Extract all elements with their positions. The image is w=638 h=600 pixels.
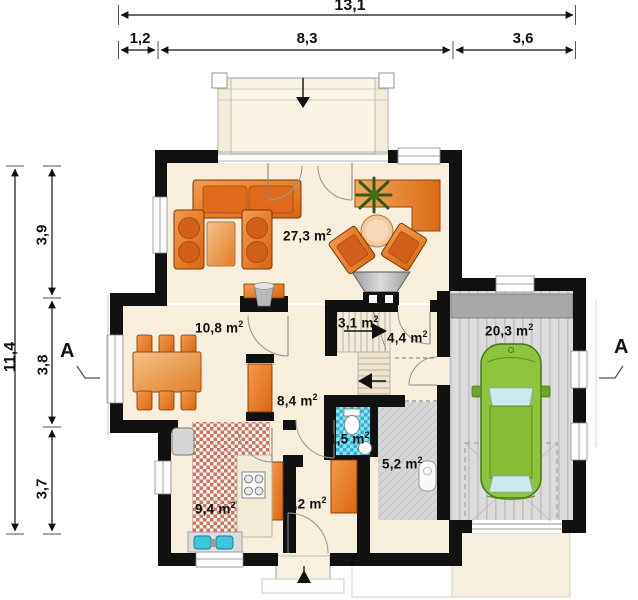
dining-set	[133, 335, 201, 410]
section-flag-left	[77, 366, 100, 378]
section-flag-right	[599, 366, 623, 378]
garage-door	[472, 521, 562, 533]
dining-table	[133, 352, 201, 392]
room-label-wc: 1,5 m2	[329, 430, 370, 447]
kitchen-tall-cabinet	[271, 462, 283, 520]
window	[155, 461, 171, 494]
dim-top-seg-3: 3,6	[503, 30, 543, 47]
window	[107, 335, 123, 403]
terrace-post	[379, 73, 394, 88]
dim-top-seg-1: 1,2	[120, 30, 160, 47]
kitchen-window	[196, 552, 243, 567]
dim-left-total: 11,4	[2, 342, 20, 372]
room-label-dining: 10,8 m2	[195, 319, 243, 336]
vestibule-wardrobe	[331, 460, 357, 513]
window	[496, 276, 534, 292]
car-mirror	[472, 386, 481, 397]
car-mirror	[541, 386, 550, 397]
hall-wardrobe	[248, 364, 272, 412]
fridge	[172, 428, 194, 455]
room-label-hall-upper: 4,4 m2	[387, 329, 428, 346]
room-label-garage: 20,3 m2	[485, 322, 533, 339]
terrace	[212, 73, 394, 154]
plant	[357, 178, 391, 212]
armchair	[174, 210, 204, 269]
room-label-kitchen: 9,4 m2	[195, 500, 236, 517]
terrace-post	[212, 73, 227, 88]
section-marker-a-left: A	[60, 340, 74, 363]
window	[571, 423, 587, 460]
room-label-stairs: 3,1 m2	[338, 314, 379, 331]
dim-top-seg-2: 8,3	[287, 30, 327, 47]
room-label-utility: 5,2 m2	[382, 455, 423, 472]
armchair	[242, 210, 272, 269]
section-marker-a-right: A	[614, 336, 628, 359]
entrance-opening	[279, 553, 329, 566]
coffee-table	[207, 222, 235, 266]
dim-left-seg-1: 3,9	[34, 225, 51, 246]
car-roof	[490, 406, 532, 478]
window	[571, 351, 587, 388]
kitchen-sink	[188, 532, 242, 552]
dim-top-total: 13,1	[330, 0, 370, 15]
window	[153, 197, 167, 253]
dim-left-seg-2: 3,8	[35, 355, 52, 376]
floor-plan-canvas: 13,1 1,2 8,3 3,6 11,4 3,9 3,8 3,7 A A 27…	[0, 0, 638, 600]
garage-shelf	[451, 294, 573, 318]
stove	[242, 472, 265, 498]
window	[398, 148, 440, 164]
room-label-living: 27,3 m2	[283, 227, 331, 244]
room-label-vestibule: 3,2 m2	[286, 495, 327, 512]
dim-left-seg-3: 3,7	[34, 479, 51, 500]
car	[472, 344, 550, 500]
car-rear-window	[489, 476, 533, 492]
room-label-hall-lower: 8,4 m2	[277, 392, 318, 409]
